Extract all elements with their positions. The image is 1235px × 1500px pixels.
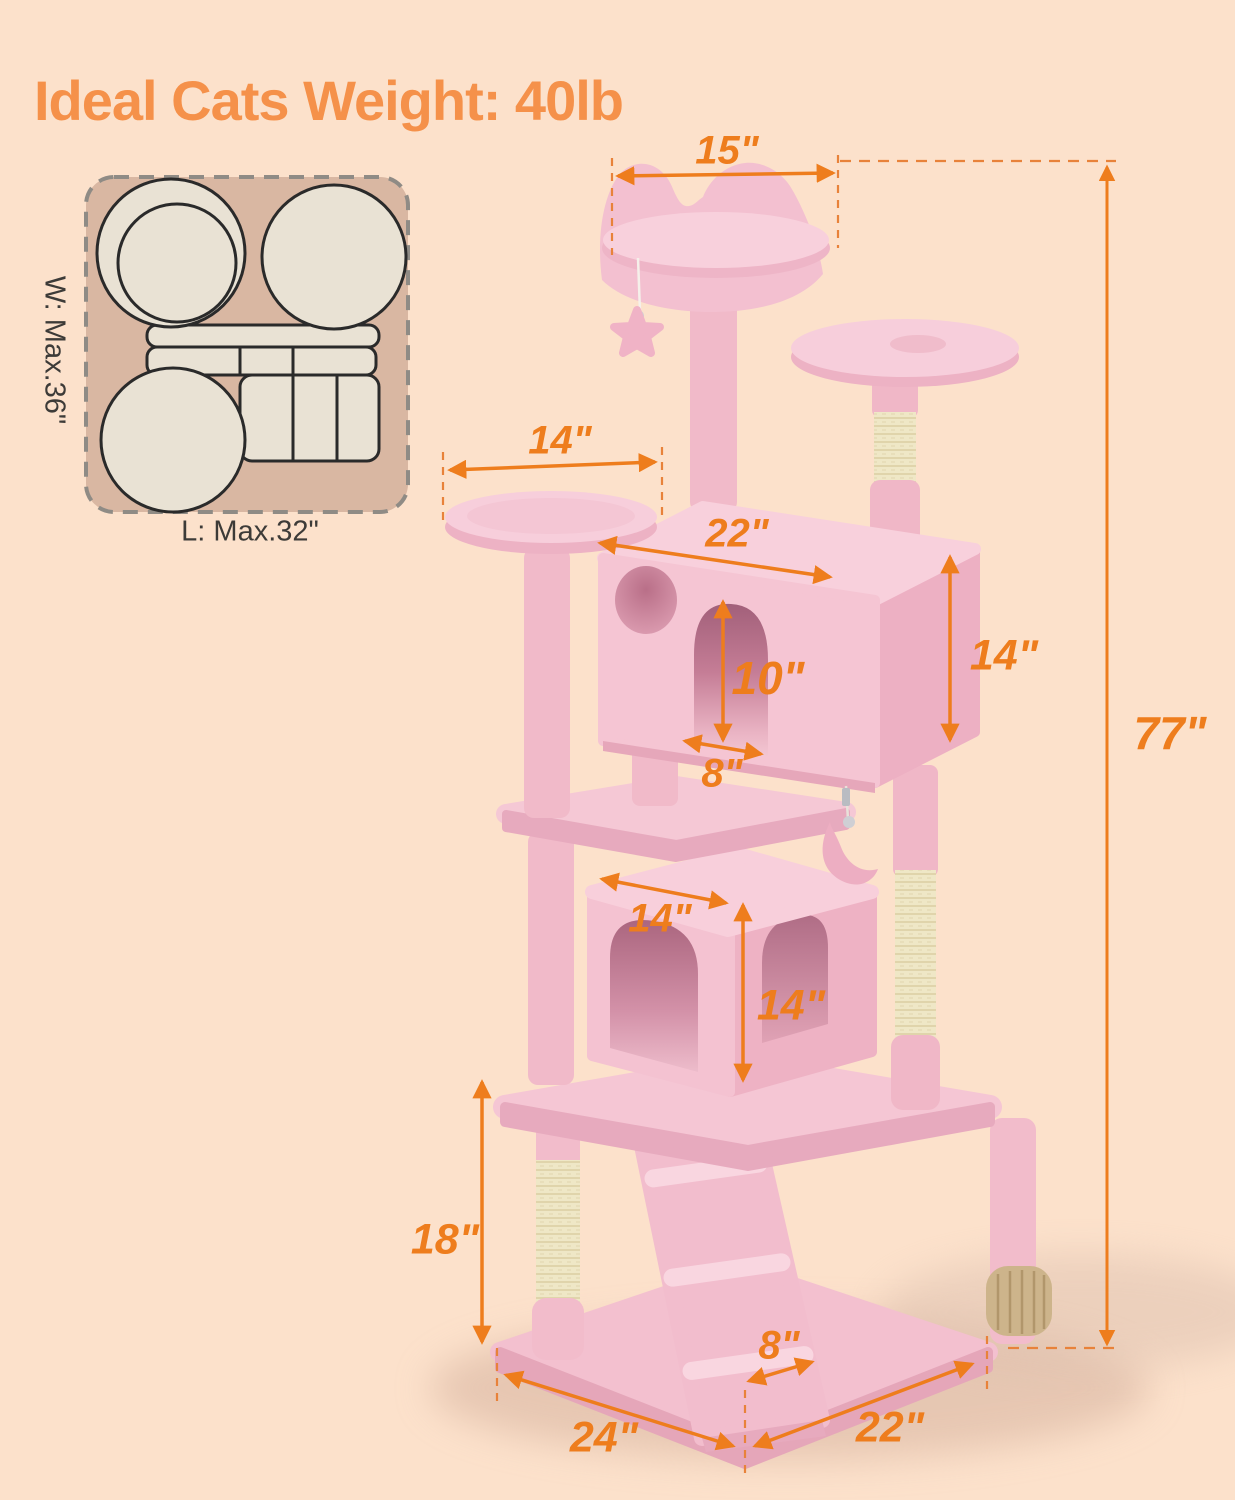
- dim-label-lower-condo-width: 14": [628, 897, 691, 942]
- cat-tree-illustration: [0, 0, 1235, 1500]
- dim-label-bottom-post-height: 18": [411, 1216, 479, 1265]
- lower-condo-front-arch: [610, 920, 698, 1072]
- left-round-platform: [445, 491, 657, 554]
- footprint-length-label: L: Max.32": [181, 516, 319, 549]
- upper-condo: [603, 507, 975, 793]
- left-upper-post: [524, 548, 570, 818]
- left-mid-post: [528, 832, 574, 1085]
- right-base-post: [986, 1118, 1052, 1344]
- dim-label-ramp-width: 8": [758, 1324, 799, 1369]
- dim-label-lower-condo-height: 14": [757, 982, 825, 1031]
- footprint-inset: [86, 177, 408, 512]
- cat-tree-infographic: Ideal Cats Weight: 40lb W: Max.36" L: Ma…: [0, 0, 1235, 1500]
- dim-label-base-width: 22": [856, 1404, 924, 1453]
- dim-label-door-height: 10": [732, 651, 805, 705]
- groomer-brush: [986, 1266, 1052, 1336]
- dim-label-left-platform-width: 14": [528, 419, 591, 464]
- footprint-width-label: W: Max.36": [38, 276, 71, 424]
- top-perch: [600, 163, 830, 312]
- left-base-post: [532, 1118, 584, 1360]
- dim-label-top-perch-width: 15": [695, 129, 758, 174]
- upper-condo-peephole: [615, 566, 677, 634]
- dim-label-upper-condo-height: 14": [970, 632, 1038, 681]
- right-round-perch: [791, 319, 1019, 387]
- dim-label-total-height: 77": [1134, 706, 1207, 760]
- page-title: Ideal Cats Weight: 40lb: [34, 68, 623, 133]
- dim-label-door-width: 8": [701, 752, 742, 797]
- dim-label-upper-condo-width: 22": [705, 512, 768, 557]
- lower-condo: [592, 854, 872, 1092]
- right-sisal-post: [891, 765, 940, 1110]
- dim-label-base-depth: 24": [570, 1414, 638, 1463]
